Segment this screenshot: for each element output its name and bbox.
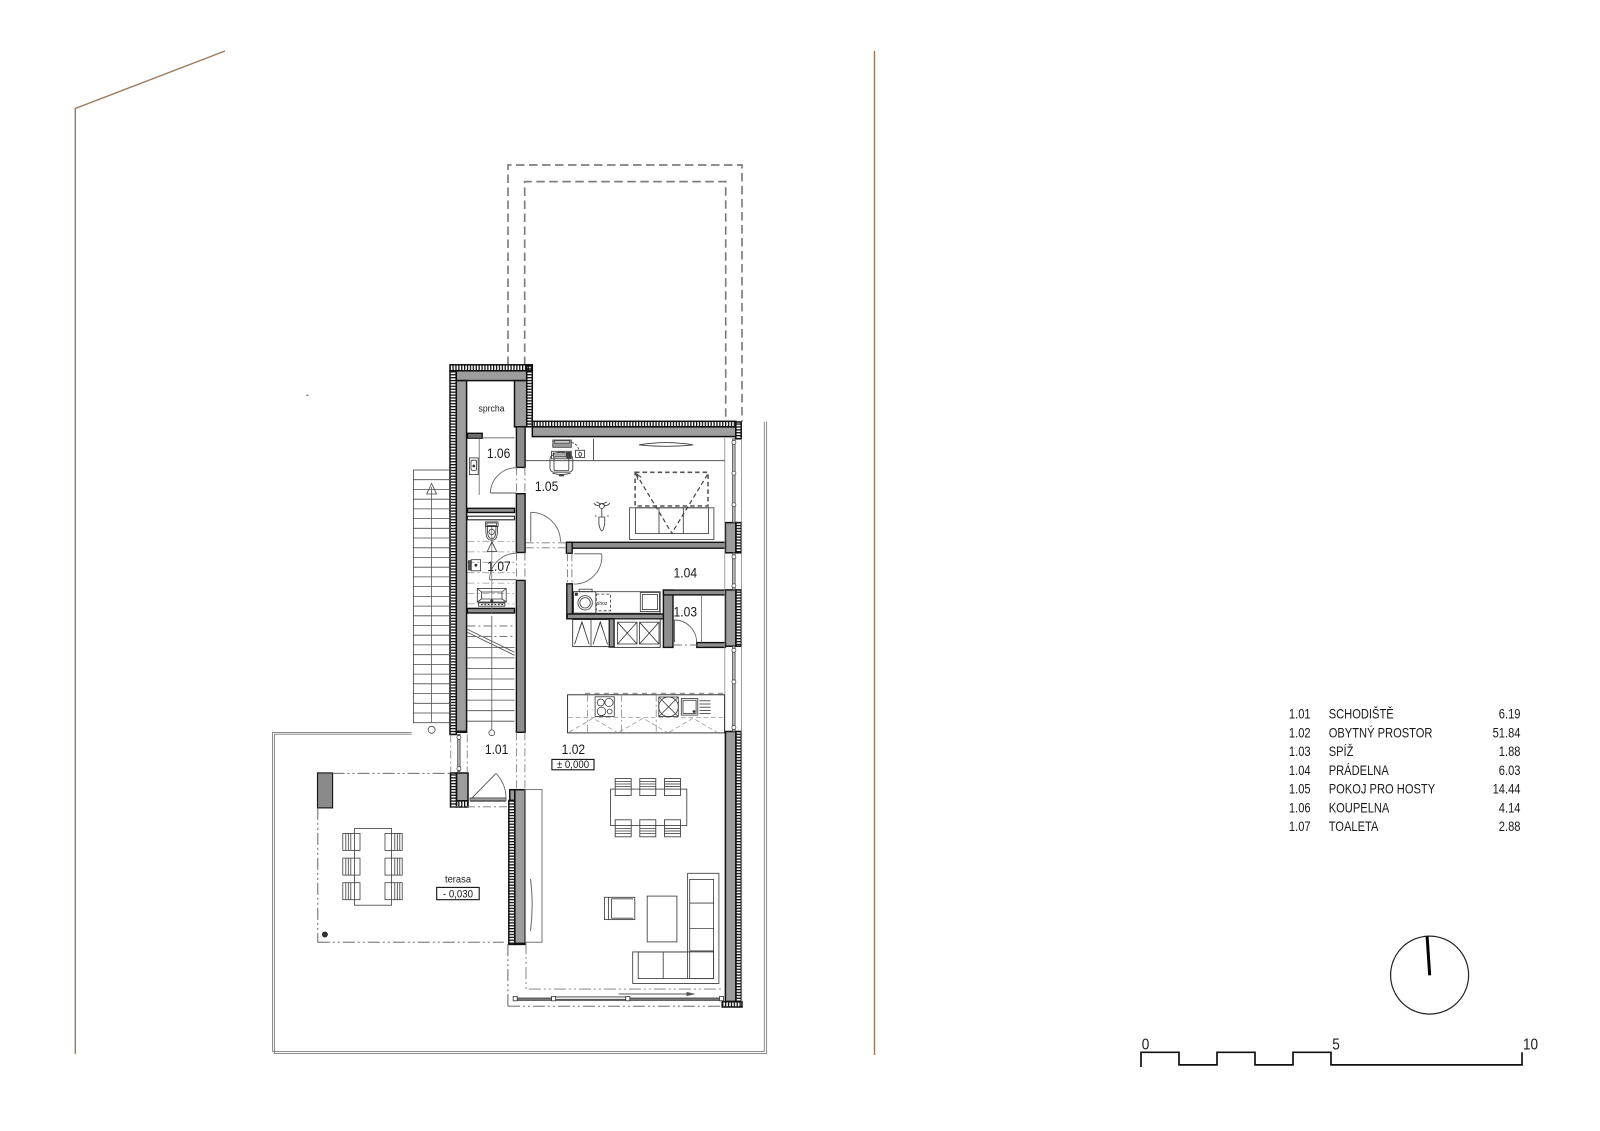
svg-text:6.03: 6.03 [1499, 763, 1521, 778]
svg-text:1.07: 1.07 [487, 558, 510, 574]
svg-text:1.06: 1.06 [1289, 800, 1311, 815]
svg-text:1.03: 1.03 [674, 604, 697, 620]
svg-text:6.19: 6.19 [1499, 707, 1521, 722]
svg-text:terasa: terasa [445, 874, 472, 885]
svg-text:SPÍŽ: SPÍŽ [1329, 743, 1354, 759]
svg-text:14.44: 14.44 [1493, 782, 1521, 797]
svg-text:1.04: 1.04 [1289, 763, 1311, 778]
svg-text:10: 10 [1523, 1037, 1538, 1054]
svg-text:sprcha: sprcha [479, 403, 506, 414]
svg-text:51.84: 51.84 [1493, 725, 1521, 740]
svg-text:1.05: 1.05 [535, 478, 558, 494]
svg-text:1.02: 1.02 [562, 741, 585, 757]
svg-text:1.01: 1.01 [1289, 707, 1311, 722]
svg-text:SCHODIŠTĚ: SCHODIŠTĚ [1329, 706, 1394, 722]
svg-text:1.07: 1.07 [1289, 819, 1311, 834]
svg-text:1.02: 1.02 [1289, 725, 1311, 740]
svg-text:2.88: 2.88 [1499, 819, 1521, 834]
svg-text:1.06: 1.06 [487, 445, 510, 461]
svg-text:± 0,000: ± 0,000 [557, 759, 589, 771]
svg-text:PRÁDELNA: PRÁDELNA [1329, 762, 1390, 778]
svg-text:1.04: 1.04 [674, 565, 697, 581]
svg-text:TOALETA: TOALETA [1329, 819, 1379, 834]
svg-text:- 0,030: - 0,030 [443, 889, 473, 901]
svg-text:1.03: 1.03 [1289, 744, 1311, 759]
svg-text:0: 0 [1142, 1037, 1150, 1054]
svg-text:1.01: 1.01 [485, 741, 508, 757]
svg-text:4.14: 4.14 [1499, 800, 1521, 815]
svg-text:POKOJ PRO HOSTY: POKOJ PRO HOSTY [1329, 782, 1436, 797]
svg-text:shoz: shoz [597, 601, 608, 607]
svg-text:OBYTNÝ PROSTOR: OBYTNÝ PROSTOR [1329, 724, 1433, 740]
svg-text:KOUPELNA: KOUPELNA [1329, 800, 1390, 815]
svg-text:1.05: 1.05 [1289, 782, 1311, 797]
svg-text:1.88: 1.88 [1499, 744, 1521, 759]
svg-text:5: 5 [1332, 1037, 1340, 1054]
